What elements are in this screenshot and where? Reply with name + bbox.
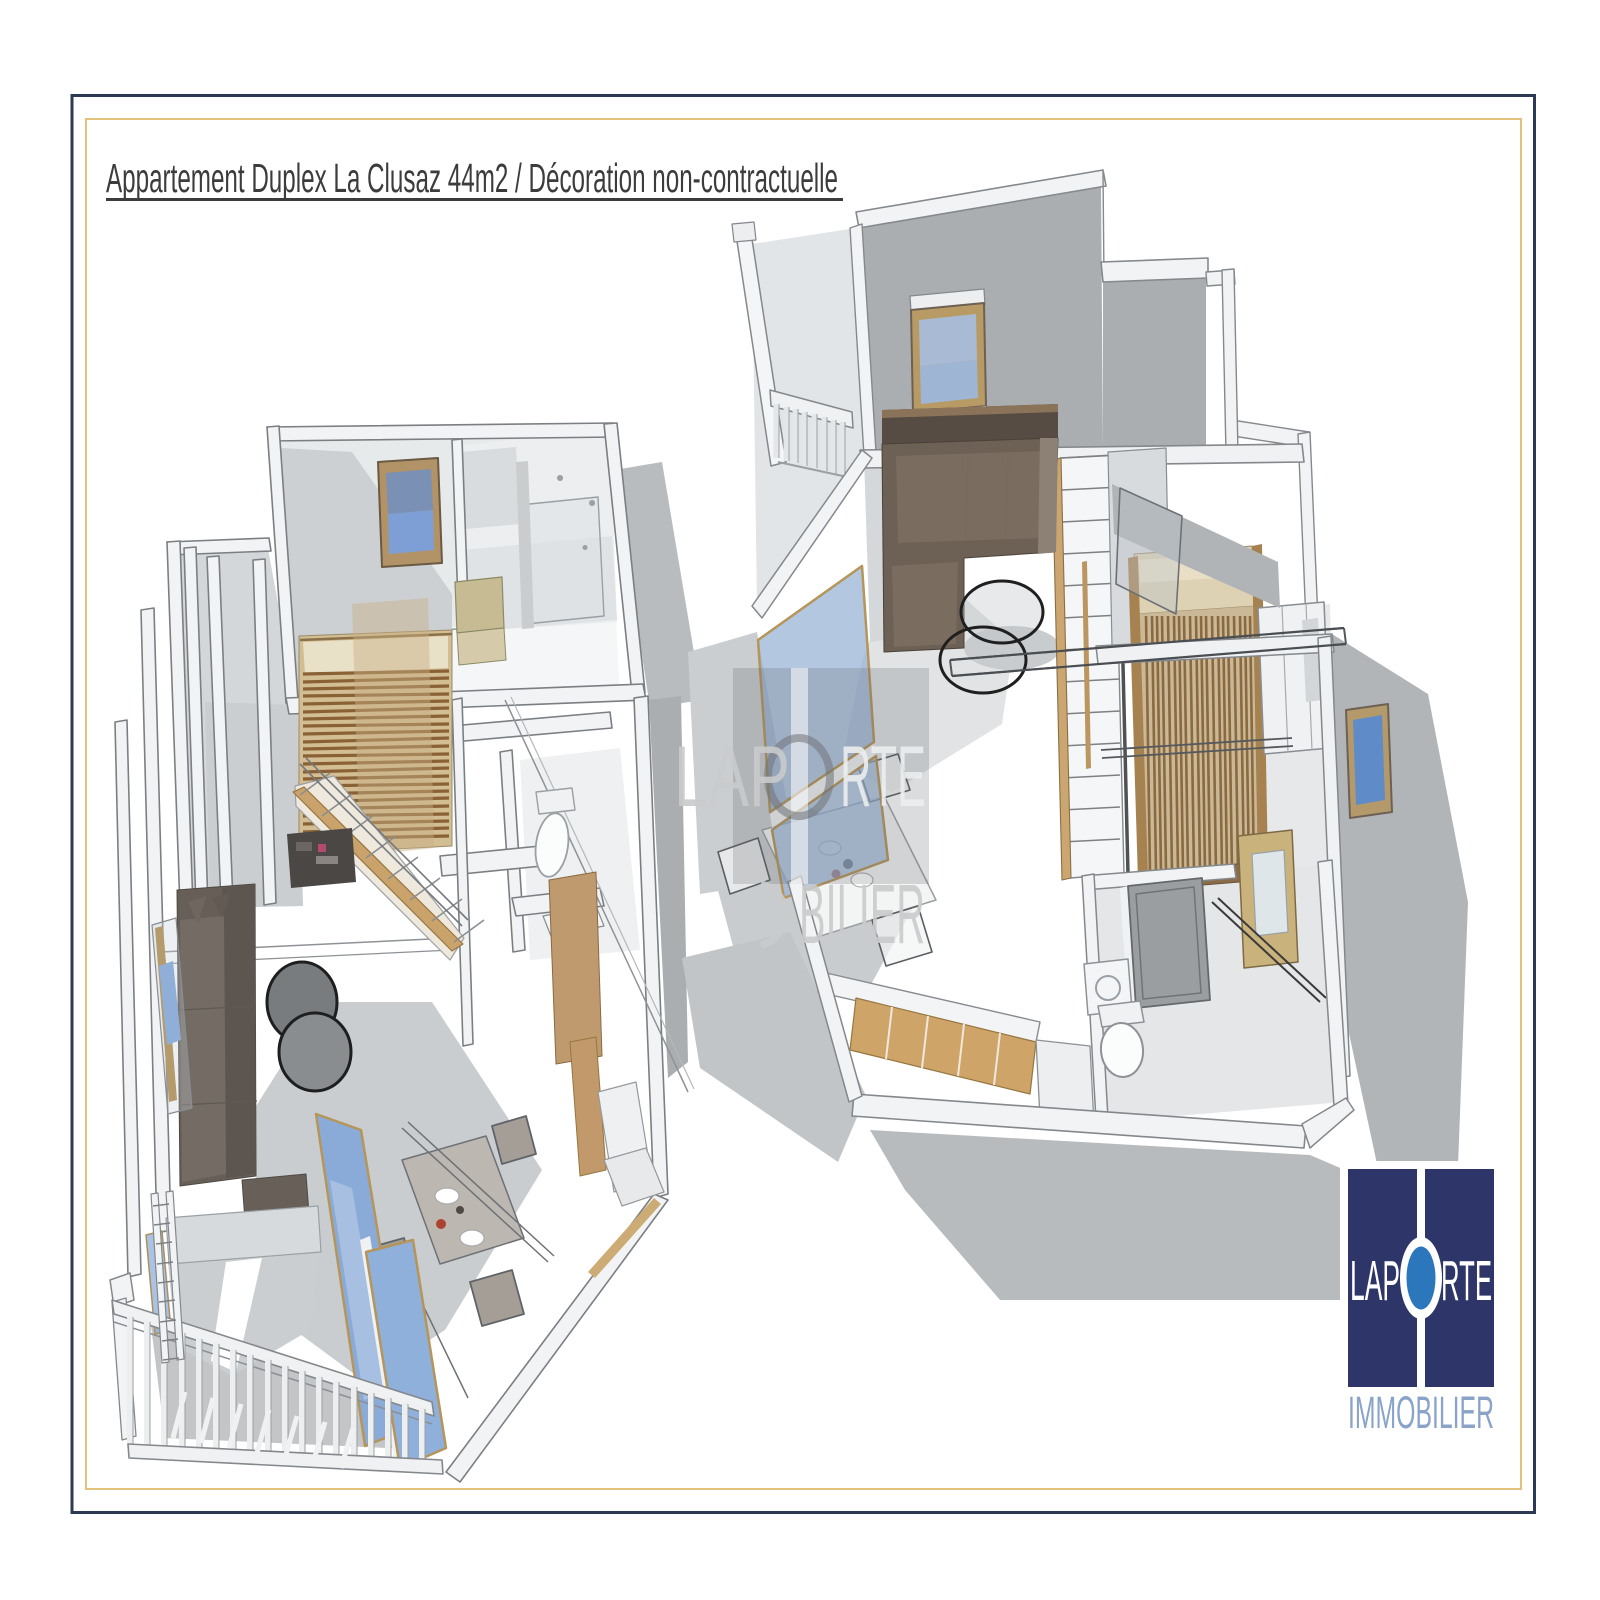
svg-text:RTE: RTE	[840, 729, 926, 825]
svg-text:LAP: LAP	[674, 729, 790, 825]
svg-text:BILIER: BILIER	[799, 867, 925, 961]
svg-text:Appartement Duplex La Clusaz 4: Appartement Duplex La Clusaz 44m2 / Déco…	[106, 155, 838, 201]
svg-text:LAP: LAP	[1350, 1249, 1400, 1313]
svg-text:RTE: RTE	[1441, 1249, 1492, 1313]
svg-text:IMMOBILIER: IMMOBILIER	[1348, 1387, 1494, 1438]
